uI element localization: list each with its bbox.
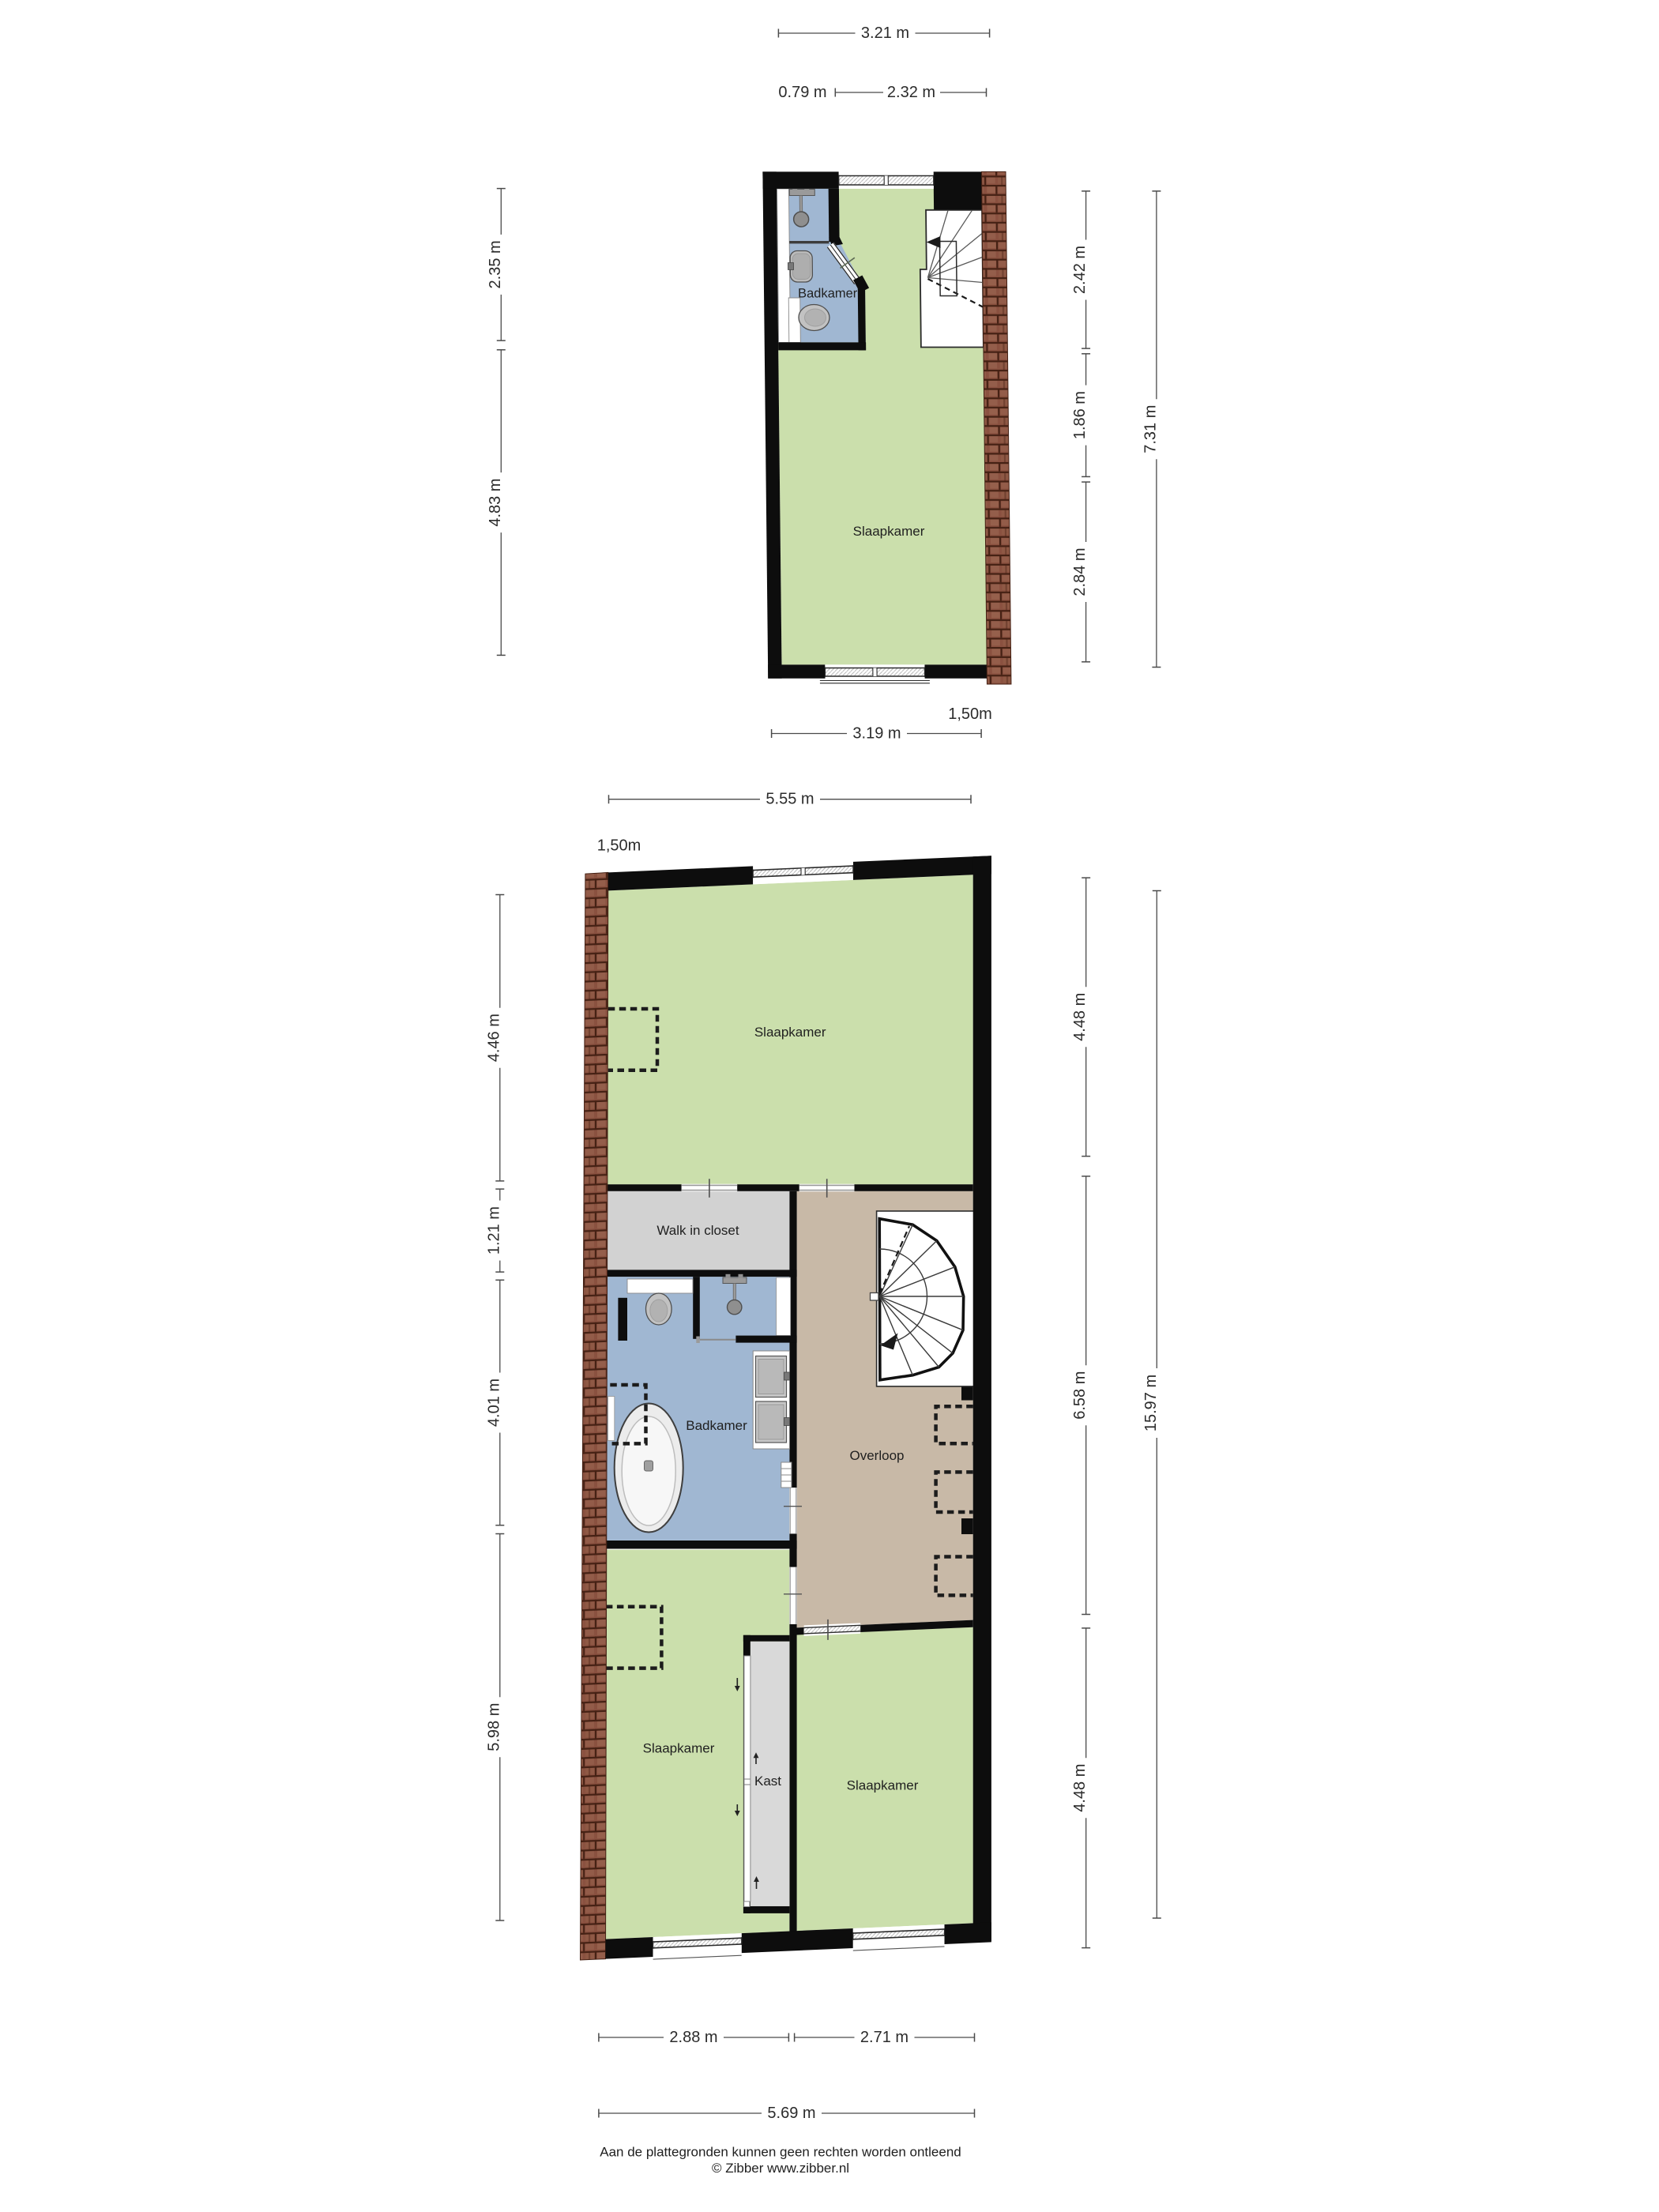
svg-text:4.48 m: 4.48 m <box>1071 993 1089 1041</box>
svg-text:4.01 m: 4.01 m <box>485 1379 502 1427</box>
svg-text:2.32 m: 2.32 m <box>887 84 935 101</box>
svg-text:1.86 m: 1.86 m <box>1071 391 1089 439</box>
svg-text:Kast: Kast <box>754 1774 781 1789</box>
svg-text:5.98 m: 5.98 m <box>485 1703 502 1751</box>
svg-text:Slaapkamer: Slaapkamer <box>643 1741 715 1756</box>
svg-text:4.46 m: 4.46 m <box>485 1014 502 1062</box>
svg-text:Aan de plattegronden kunnen ge: Aan de plattegronden kunnen geen rechten… <box>600 2144 961 2159</box>
svg-text:Slaapkamer: Slaapkamer <box>847 1778 919 1793</box>
svg-text:Walk in closet: Walk in closet <box>656 1223 739 1238</box>
svg-text:1,50m: 1,50m <box>597 837 641 855</box>
svg-text:2.71 m: 2.71 m <box>860 2029 908 2046</box>
svg-text:6.58 m: 6.58 m <box>1071 1371 1089 1420</box>
svg-text:3.21 m: 3.21 m <box>861 24 909 42</box>
svg-text:0.79 m: 0.79 m <box>778 84 826 101</box>
svg-text:7.31 m: 7.31 m <box>1142 405 1159 453</box>
svg-text:Slaapkamer: Slaapkamer <box>853 524 925 539</box>
svg-text:1,50m: 1,50m <box>948 705 992 723</box>
svg-text:Badkamer: Badkamer <box>686 1418 747 1433</box>
svg-text:Overloop: Overloop <box>850 1448 905 1463</box>
svg-text:5.69 m: 5.69 m <box>767 2105 815 2122</box>
svg-text:2.42 m: 2.42 m <box>1071 246 1089 294</box>
svg-text:5.55 m: 5.55 m <box>766 791 814 808</box>
svg-text:4.83 m: 4.83 m <box>487 479 504 527</box>
svg-text:1.21 m: 1.21 m <box>485 1206 502 1255</box>
svg-text:4.48 m: 4.48 m <box>1071 1764 1089 1812</box>
svg-text:Badkamer: Badkamer <box>798 287 858 301</box>
svg-text:15.97 m: 15.97 m <box>1142 1375 1160 1431</box>
svg-text:2.88 m: 2.88 m <box>669 2029 717 2046</box>
svg-text:2.35 m: 2.35 m <box>487 240 504 288</box>
svg-text:© Zibber www.zibber.nl: © Zibber www.zibber.nl <box>712 2161 849 2176</box>
svg-text:2.84 m: 2.84 m <box>1071 547 1089 596</box>
svg-text:Slaapkamer: Slaapkamer <box>754 1025 826 1040</box>
svg-text:3.19 m: 3.19 m <box>852 725 901 743</box>
